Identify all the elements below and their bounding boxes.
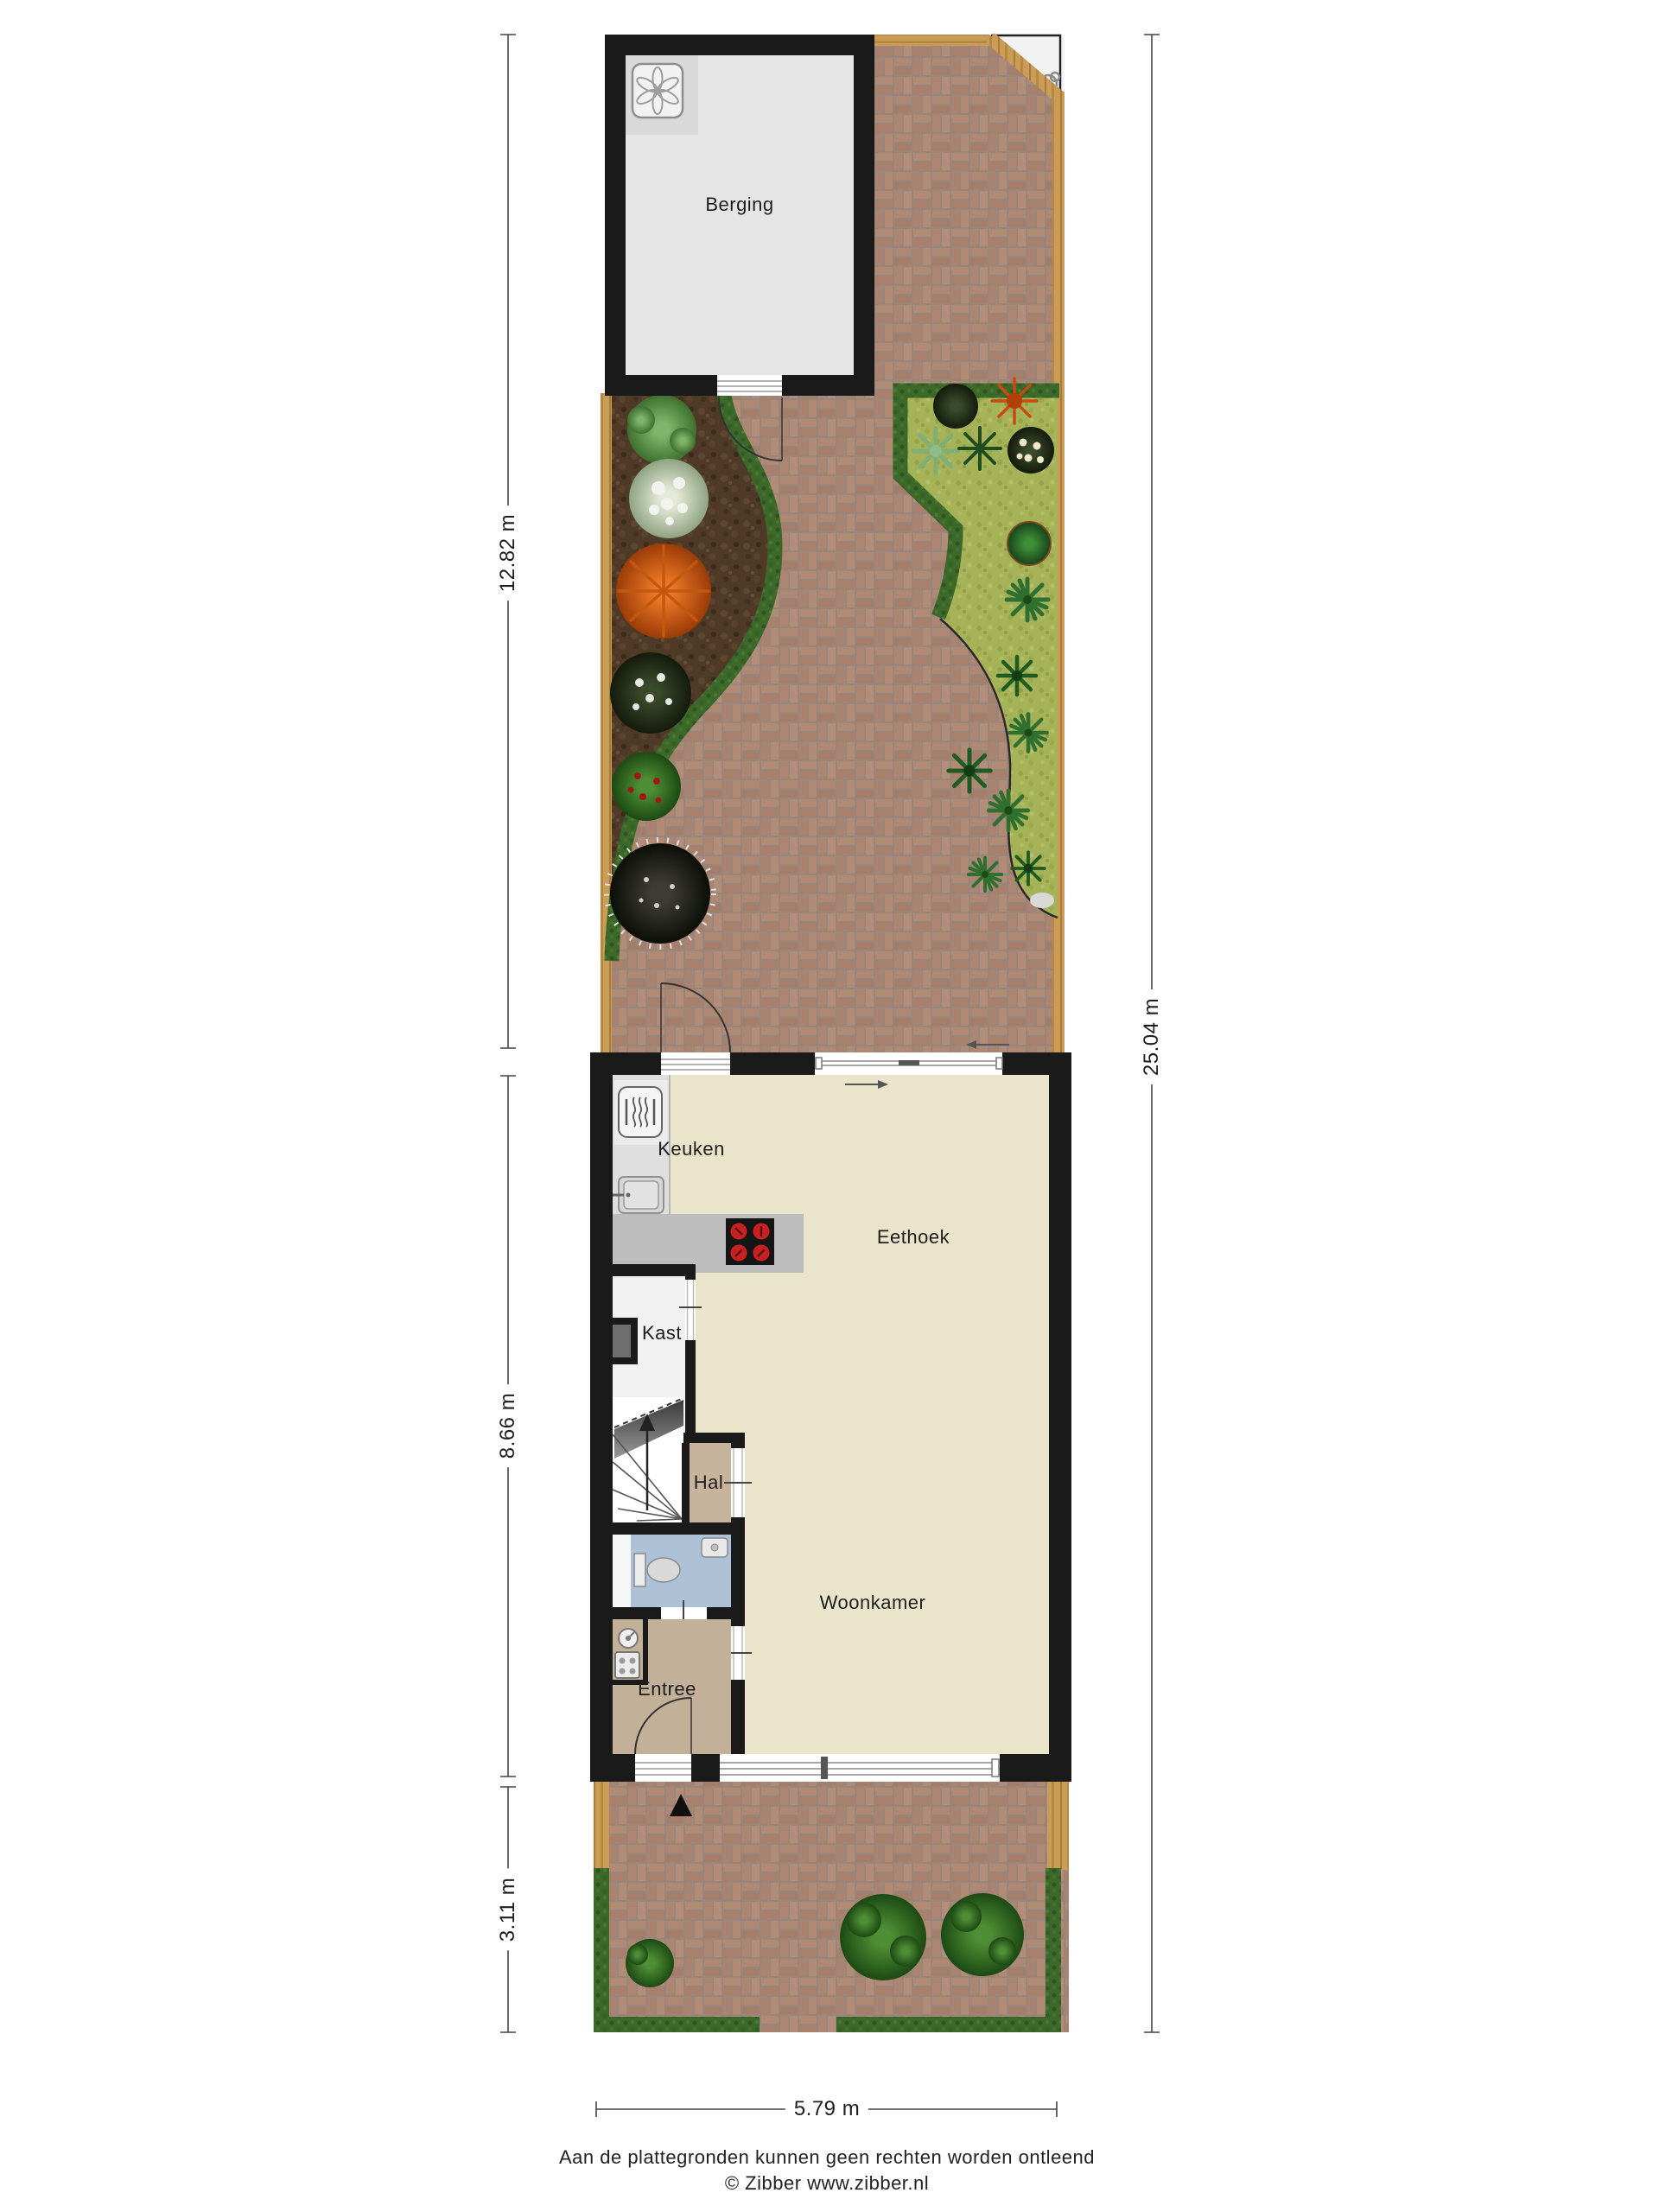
floorplan-drawing: [0, 0, 1659, 2212]
kitchen-counter-bottom: [613, 1214, 804, 1273]
room-label-eethoek: Eethoek: [877, 1226, 950, 1249]
dim-plot-width: 5.79 m: [785, 2097, 868, 2121]
dim-front-garden-depth: 3.11 m: [496, 1869, 520, 1951]
back-door-opening: [661, 1052, 730, 1075]
wood-edge-top: [874, 35, 989, 46]
wc-sink-icon: [702, 1538, 728, 1557]
kitchen-sink-icon: [613, 1177, 664, 1213]
footer-disclaimer: Aan de plattegronden kunnen geen rechten…: [559, 2146, 1095, 2169]
front-door-opening: [635, 1754, 691, 1782]
room-label-hal: Hal: [694, 1471, 724, 1494]
wood-edge-front-left: [594, 1782, 609, 1868]
room-label-kast: Kast: [642, 1322, 682, 1344]
stairs-up-icon: [613, 1397, 683, 1522]
heater-icon: [619, 1087, 662, 1137]
room-label-woonkamer: Woonkamer: [820, 1592, 926, 1614]
dim-garden-depth: 12.82 m: [496, 505, 520, 601]
gas-meter-icon: [615, 1652, 639, 1678]
dim-house-depth: 8.66 m: [496, 1384, 520, 1467]
front-garden: [594, 1782, 1069, 2032]
room-label-keuken: Keuken: [658, 1138, 725, 1160]
cooktop-icon: [726, 1218, 774, 1265]
room-label-berging: Berging: [705, 194, 773, 216]
bottom-window: [720, 1754, 1000, 1782]
floorplan-page: Berging Keuken Eethoek Kast Hal Woonkame…: [0, 0, 1659, 2212]
dim-total-depth: 25.04 m: [1140, 989, 1164, 1084]
wc-toilet-room: [590, 1522, 745, 1626]
electric-meter-icon: [619, 1629, 638, 1648]
wood-edge-front-right: [1047, 1782, 1069, 1870]
footer-copyright: © Zibber www.zibber.nl: [725, 2172, 929, 2195]
room-label-entree: Entree: [638, 1678, 696, 1700]
